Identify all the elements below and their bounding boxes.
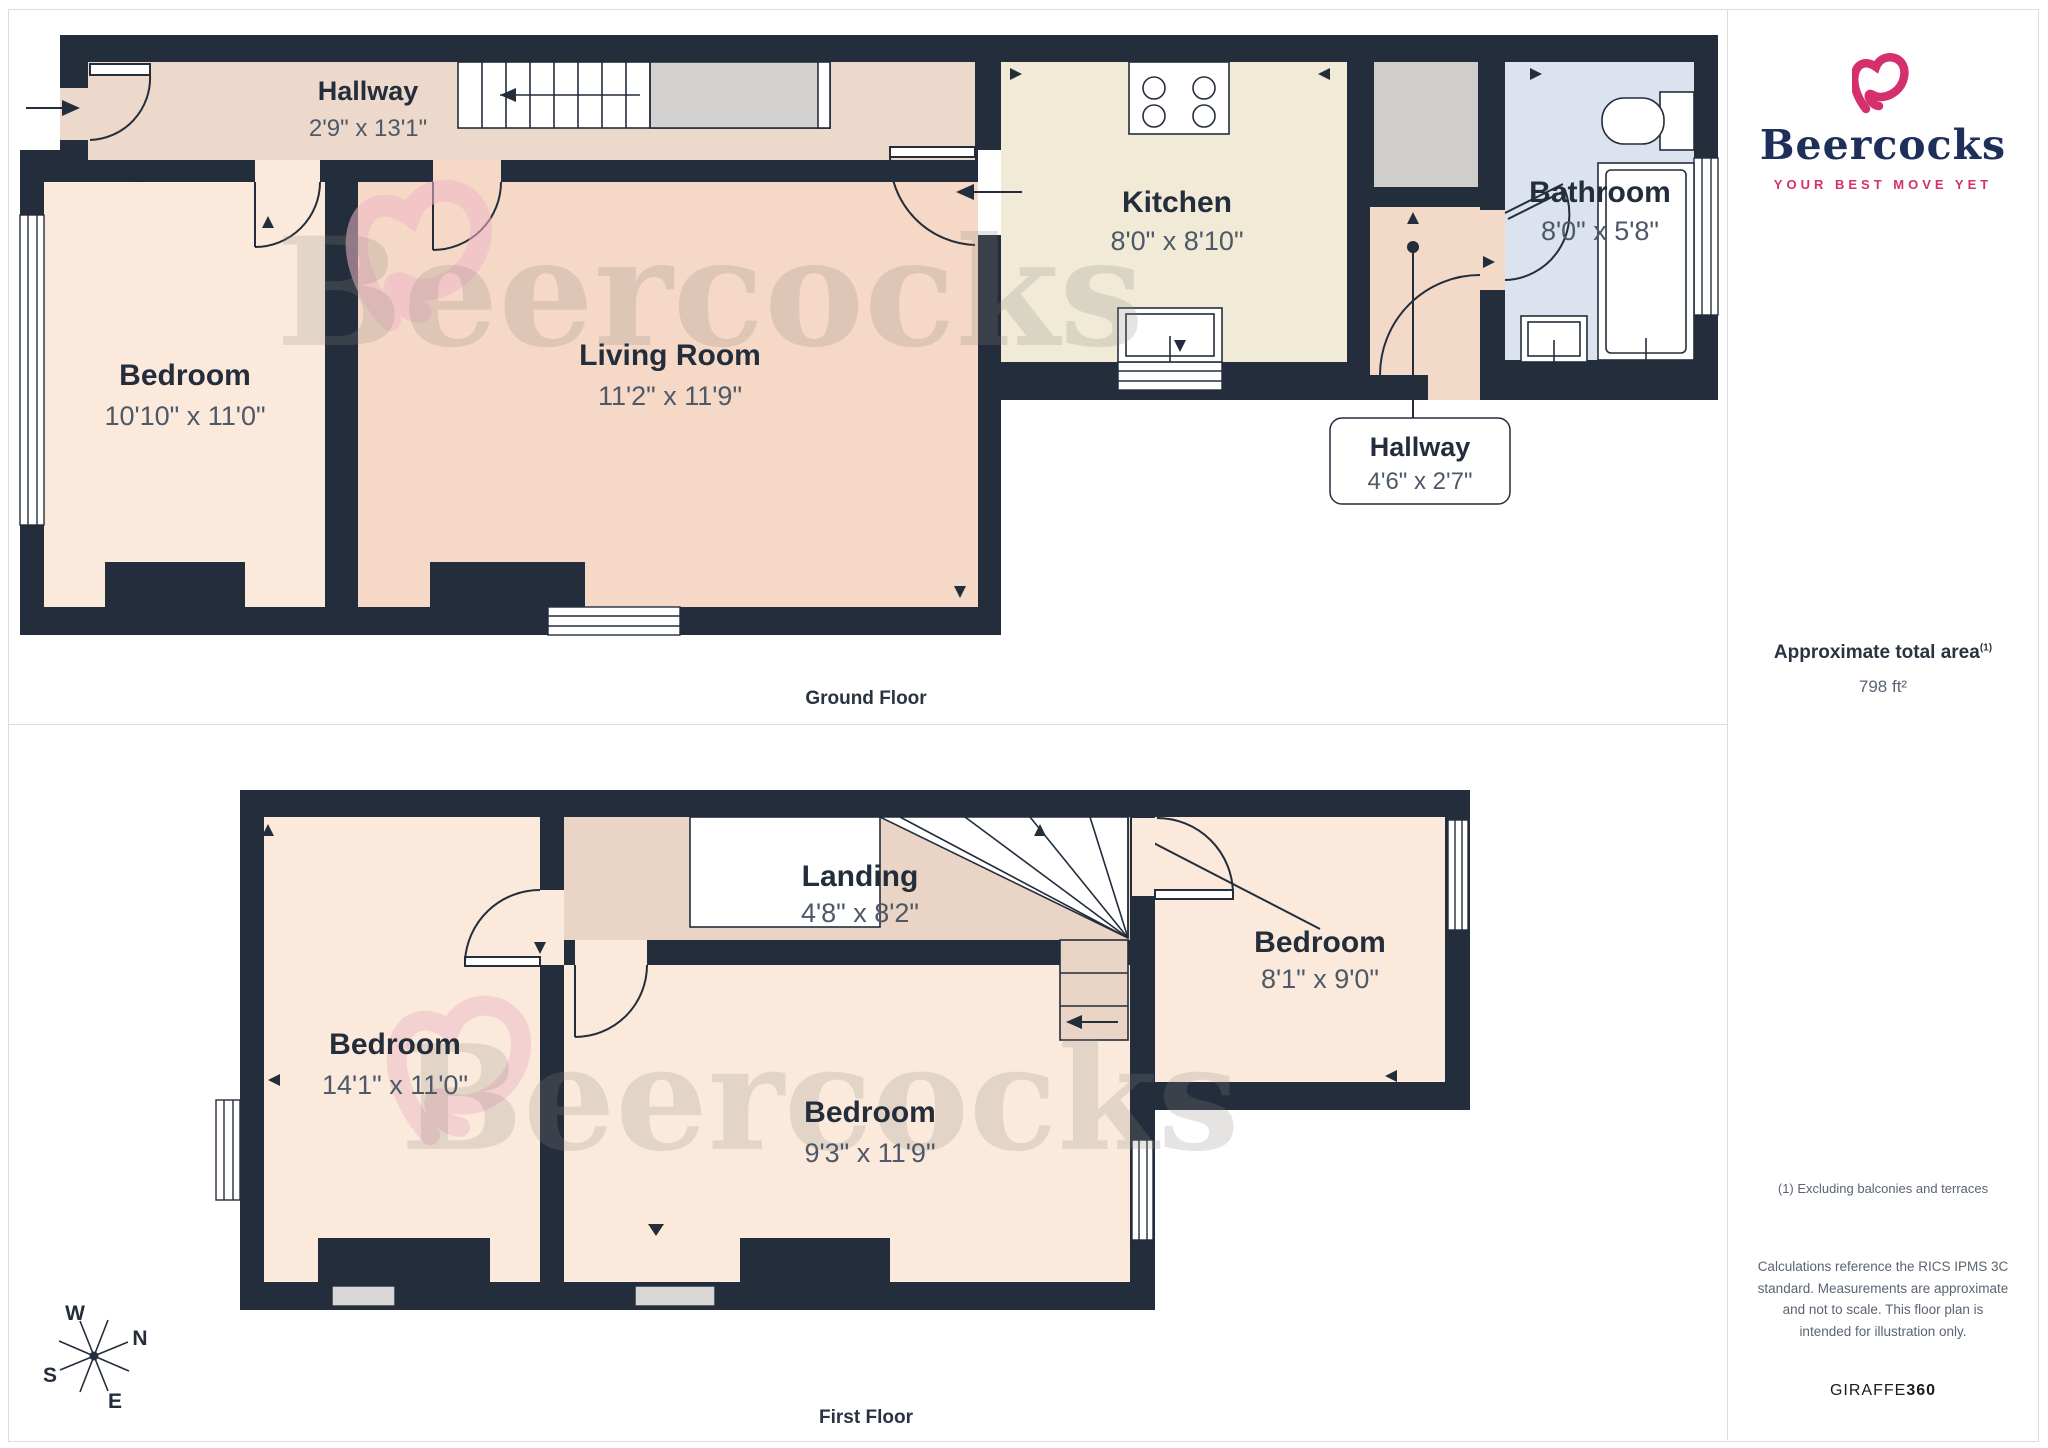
ground-floor-plan: Beercocks Hallway 4'6" x 2'7" Hallway 2'… [0, 0, 1727, 724]
bedroom-front-label: Bedroom [329, 1028, 461, 1061]
bedroom-rear-dims: 8'1" x 9'0" [1261, 964, 1379, 994]
beercocks-wordmark: Beercocks [1728, 121, 2038, 169]
compass-icon: W N S E [39, 1300, 151, 1412]
kitchen-dims: 8'0" x 8'10" [1110, 226, 1243, 256]
living-room-dims: 11'2" x 11'9" [598, 381, 742, 411]
sidebar: Beercocks YOUR BEST MOVE YET Approximate… [1728, 9, 2038, 1440]
ground-stairs-icon [458, 62, 830, 128]
svg-text:N: N [132, 1327, 147, 1350]
rear-hallway-label: Hallway [1370, 432, 1471, 462]
floorplan-page: Beercocks Hallway 4'6" x 2'7" Hallway 2'… [0, 0, 2048, 1448]
bedroom-middle-dims: 9'3" x 11'9" [804, 1138, 935, 1168]
landing-dims: 4'8" x 8'2" [801, 898, 919, 928]
beercocks-tagline: YOUR BEST MOVE YET [1728, 177, 2038, 192]
storage-void [1374, 62, 1478, 187]
disclaimer-text: Calculations reference the RICS IPMS 3C … [1756, 1256, 2010, 1342]
bathroom-sink-icon [1521, 316, 1587, 362]
bedroom-dims: 10'10" x 11'0" [104, 401, 265, 431]
bedroom-rear-label: Bedroom [1254, 926, 1386, 959]
bathroom-dims: 8'0" x 5'8" [1541, 216, 1659, 246]
bathroom-label: Bathroom [1529, 176, 1671, 209]
bedroom-label: Bedroom [119, 359, 251, 392]
bedroom-middle-label: Bedroom [804, 1096, 936, 1129]
approximate-area-title: Approximate total area(1) [1728, 642, 2038, 664]
giraffe360-logo: GIRAFFE360 [1728, 1382, 2038, 1400]
hob-icon [1129, 62, 1229, 134]
kitchen-label: Kitchen [1122, 186, 1232, 219]
toilet-icon [1602, 92, 1694, 150]
hallway-dims: 2'9" x 13'1" [309, 115, 427, 142]
landing-label: Landing [802, 860, 919, 893]
area-note-ref: (1) [1980, 643, 1992, 654]
first-floor-plan: Beercocks Bedroom 14'1" x 11'0" Landing … [0, 724, 1727, 1441]
svg-text:S: S [43, 1364, 57, 1387]
rear-hallway-dims: 4'6" x 2'7" [1368, 468, 1473, 495]
approximate-area-value: 798 ft² [1728, 677, 2038, 697]
area-footnote: (1) Excluding balconies and terraces [1746, 1181, 2020, 1196]
hallway-label: Hallway [318, 76, 419, 106]
living-room-label: Living Room [579, 339, 761, 372]
floors-divider [8, 724, 1727, 725]
svg-text:W: W [65, 1302, 85, 1325]
beercocks-heart-icon [1852, 49, 1916, 115]
bedroom-front-dims: 14'1" x 11'0" [322, 1070, 468, 1100]
ground-floor-title: Ground Floor [666, 688, 1066, 710]
svg-text:E: E [108, 1390, 122, 1412]
first-floor-title: First Floor [666, 1407, 1066, 1429]
